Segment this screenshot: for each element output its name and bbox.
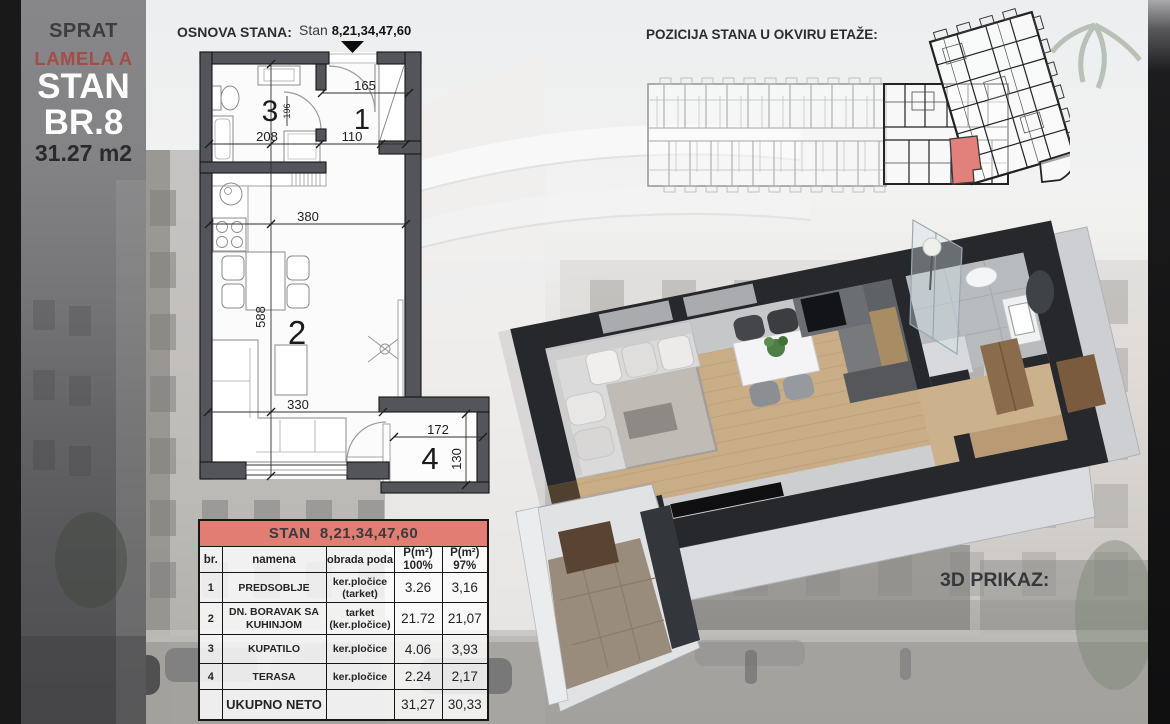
- svg-text:4: 4: [421, 441, 438, 476]
- svg-text:130: 130: [449, 448, 464, 470]
- svg-text:330: 330: [287, 397, 309, 412]
- svg-text:1: 1: [354, 104, 370, 136]
- svg-text:172: 172: [427, 422, 449, 437]
- svg-text:208: 208: [256, 129, 278, 144]
- svg-text:380: 380: [297, 209, 319, 224]
- svg-text:196: 196: [282, 103, 292, 118]
- svg-text:2: 2: [288, 314, 306, 351]
- svg-text:165: 165: [354, 78, 376, 93]
- svg-text:3: 3: [262, 95, 279, 128]
- svg-text:588: 588: [253, 306, 268, 328]
